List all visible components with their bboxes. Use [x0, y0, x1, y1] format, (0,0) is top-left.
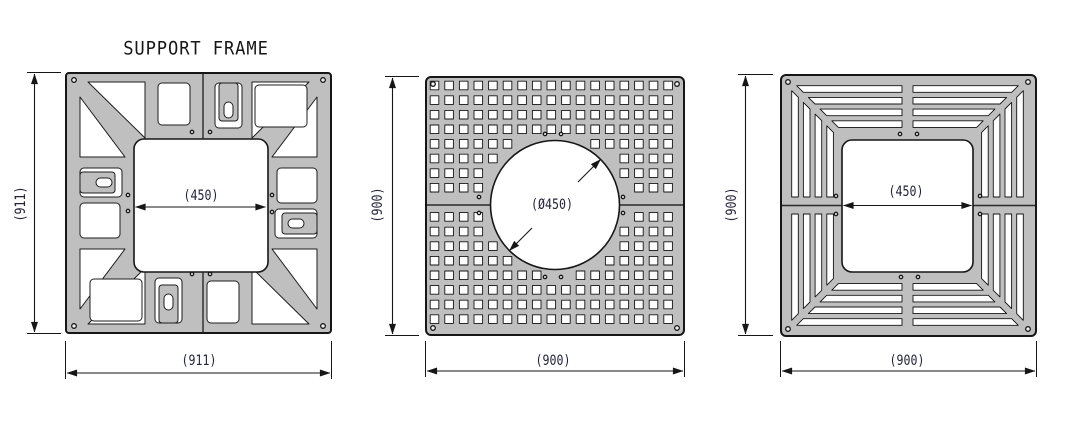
- drawing-sheet: SUPPORT FRAME (911) (911) (450) (900) (9…: [0, 0, 1079, 422]
- perforated-panel-width-dim: (900): [536, 354, 571, 369]
- square-opening: [134, 139, 268, 272]
- slotted-panel-height-dim: (900): [725, 188, 740, 223]
- drawing-title: SUPPORT FRAME: [123, 40, 269, 59]
- support-frame-height-dim: (911): [14, 187, 29, 222]
- slotted-panel-width-dim: (900): [890, 354, 925, 369]
- support-frame-width-dim: (911): [182, 354, 217, 369]
- perforated-panel-opening-dim: (Ø450): [531, 198, 573, 213]
- support-frame-opening-dim: (450): [184, 189, 219, 204]
- slotted-panel-opening-dim: (450): [889, 185, 924, 200]
- perforated-panel-height-dim: (900): [371, 188, 386, 223]
